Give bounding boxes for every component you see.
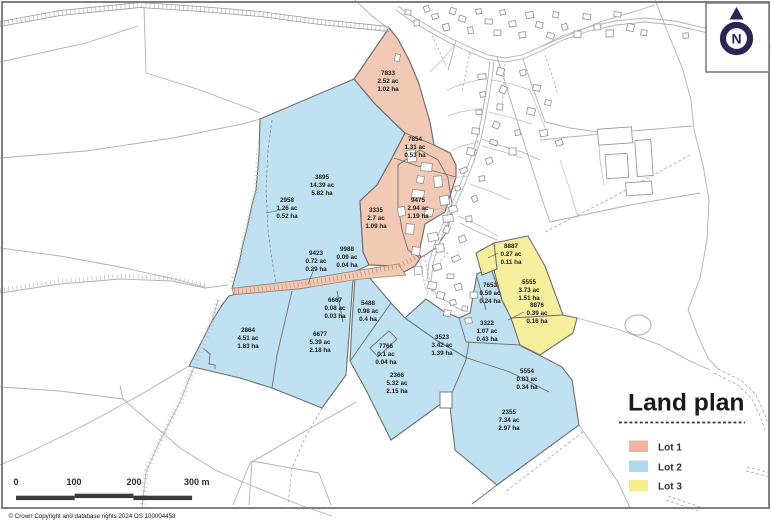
svg-text:N: N bbox=[731, 31, 741, 47]
svg-text:100: 100 bbox=[66, 477, 81, 487]
svg-text:Lot 1: Lot 1 bbox=[658, 443, 682, 454]
svg-text:200: 200 bbox=[126, 477, 141, 487]
svg-text:300 m: 300 m bbox=[184, 477, 210, 487]
svg-text:© Crown Copyright and database: © Crown Copyright and database rights 20… bbox=[9, 512, 176, 520]
svg-text:0: 0 bbox=[13, 477, 18, 487]
svg-text:Land plan: Land plan bbox=[628, 390, 745, 417]
svg-text:Lot 3: Lot 3 bbox=[658, 482, 682, 493]
svg-text:Lot 2: Lot 2 bbox=[658, 463, 682, 474]
